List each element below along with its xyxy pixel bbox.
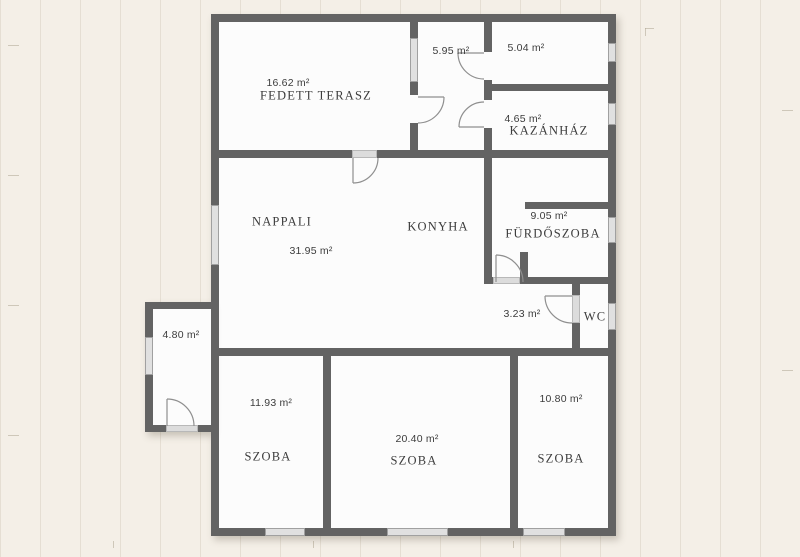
wall-segment [145,375,153,425]
wall-segment [211,14,219,536]
ruler-tick [8,435,19,436]
wall-segment [608,14,616,536]
room-area-furdoszoba: 9.05 m² [531,210,568,222]
wall-segment [484,80,492,100]
wall-segment [323,356,331,528]
ruler-tick [645,28,646,36]
room-label-szoba-3: SZOBA [538,452,585,467]
room-area-szoba-3: 10.80 m² [539,393,582,405]
window [145,337,153,375]
door-opening [572,295,580,323]
window [608,103,616,125]
wall-segment [211,150,352,158]
wall-segment [145,425,166,432]
room-area-annex: 4.80 m² [163,329,200,341]
window [387,528,448,536]
wall-segment [410,123,418,150]
wall-segment [484,128,492,150]
room-area-nappali: 31.95 m² [289,245,332,257]
room-area-corridor: 3.23 m² [504,308,541,320]
wall-segment [377,150,616,158]
window [410,38,418,82]
wall-segment [410,82,418,95]
wall-segment [484,22,492,52]
room-label-szoba-1: SZOBA [245,450,292,465]
window [608,43,616,62]
wall-segment [484,84,616,91]
room-label-fedett-terasz: FEDETT TERASZ [260,89,372,104]
ruler-tick [645,28,654,29]
ruler-tick [513,541,514,548]
room-area-hall: 5.95 m² [433,45,470,57]
door-opening [493,277,520,284]
room-label-kazanhaz: KAZÁNHÁZ [509,124,588,139]
wall-segment [198,425,211,432]
room-label-wc: WC [584,310,607,325]
wall-segment [572,284,580,295]
wall-segment [520,277,616,284]
room-area-szoba-1: 11.93 m² [250,397,292,409]
room-label-nappali: NAPPALI [252,215,312,230]
ruler-tick [782,370,793,371]
wall-segment [211,14,616,22]
ruler-tick [8,45,19,46]
window [608,303,616,330]
room-label-konyha: KONYHA [407,220,468,235]
wall-segment [525,202,616,209]
wall-segment [520,252,528,277]
wall-segment [510,356,518,528]
ruler-tick [8,305,19,306]
wall-segment [211,348,616,356]
room-area-szoba-2: 20.40 m² [395,433,438,445]
room-area-504: 5.04 m² [508,42,545,54]
ruler-tick [313,541,314,548]
door-opening [166,425,198,432]
ruler-tick [782,110,793,111]
annex-floor-slab [145,302,211,432]
door-opening [352,150,377,158]
ruler-tick [113,541,114,548]
wall-segment [145,302,211,309]
window [523,528,565,536]
window [265,528,305,536]
wall-segment [572,323,580,348]
window [211,205,219,265]
room-label-furdoszoba: FÜRDŐSZOBA [505,227,600,242]
room-area-fedett-terasz: 16.62 m² [266,77,309,89]
floor-plan: 16.62 m² FEDETT TERASZ 5.95 m² 5.04 m² 4… [0,0,800,557]
wall-segment [145,302,153,337]
ruler-tick [8,175,19,176]
window [608,217,616,243]
wall-segment [484,277,493,284]
room-label-szoba-2: SZOBA [391,454,438,469]
wall-segment [484,158,492,277]
wall-segment [410,22,418,38]
